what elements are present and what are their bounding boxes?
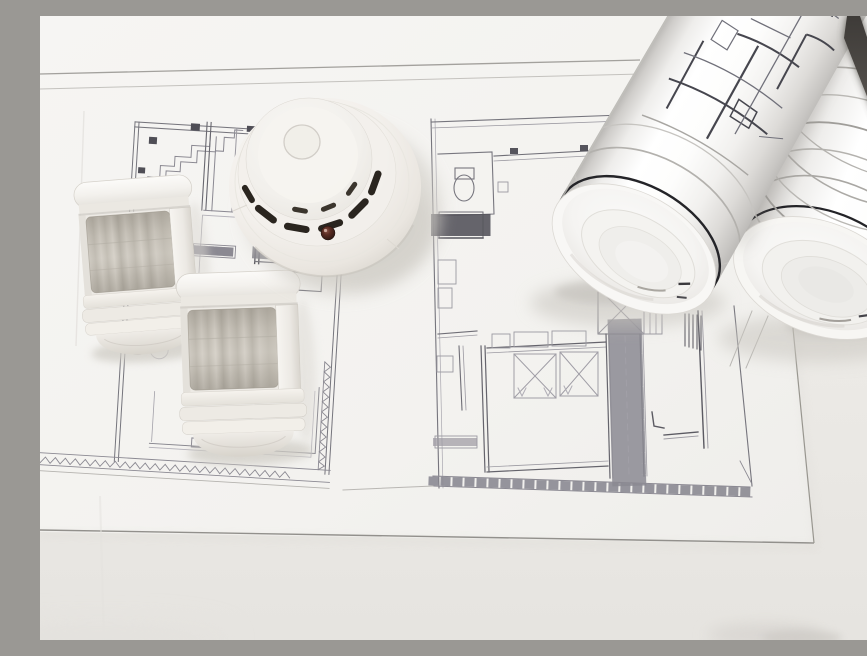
plan-grill: [439, 212, 483, 238]
scene-canvas: [40, 16, 867, 640]
detector-led: [321, 226, 335, 240]
blueprint-scene-photo: [40, 16, 867, 640]
detector-test-button: [284, 125, 320, 159]
plan-stairs: [606, 334, 647, 478]
